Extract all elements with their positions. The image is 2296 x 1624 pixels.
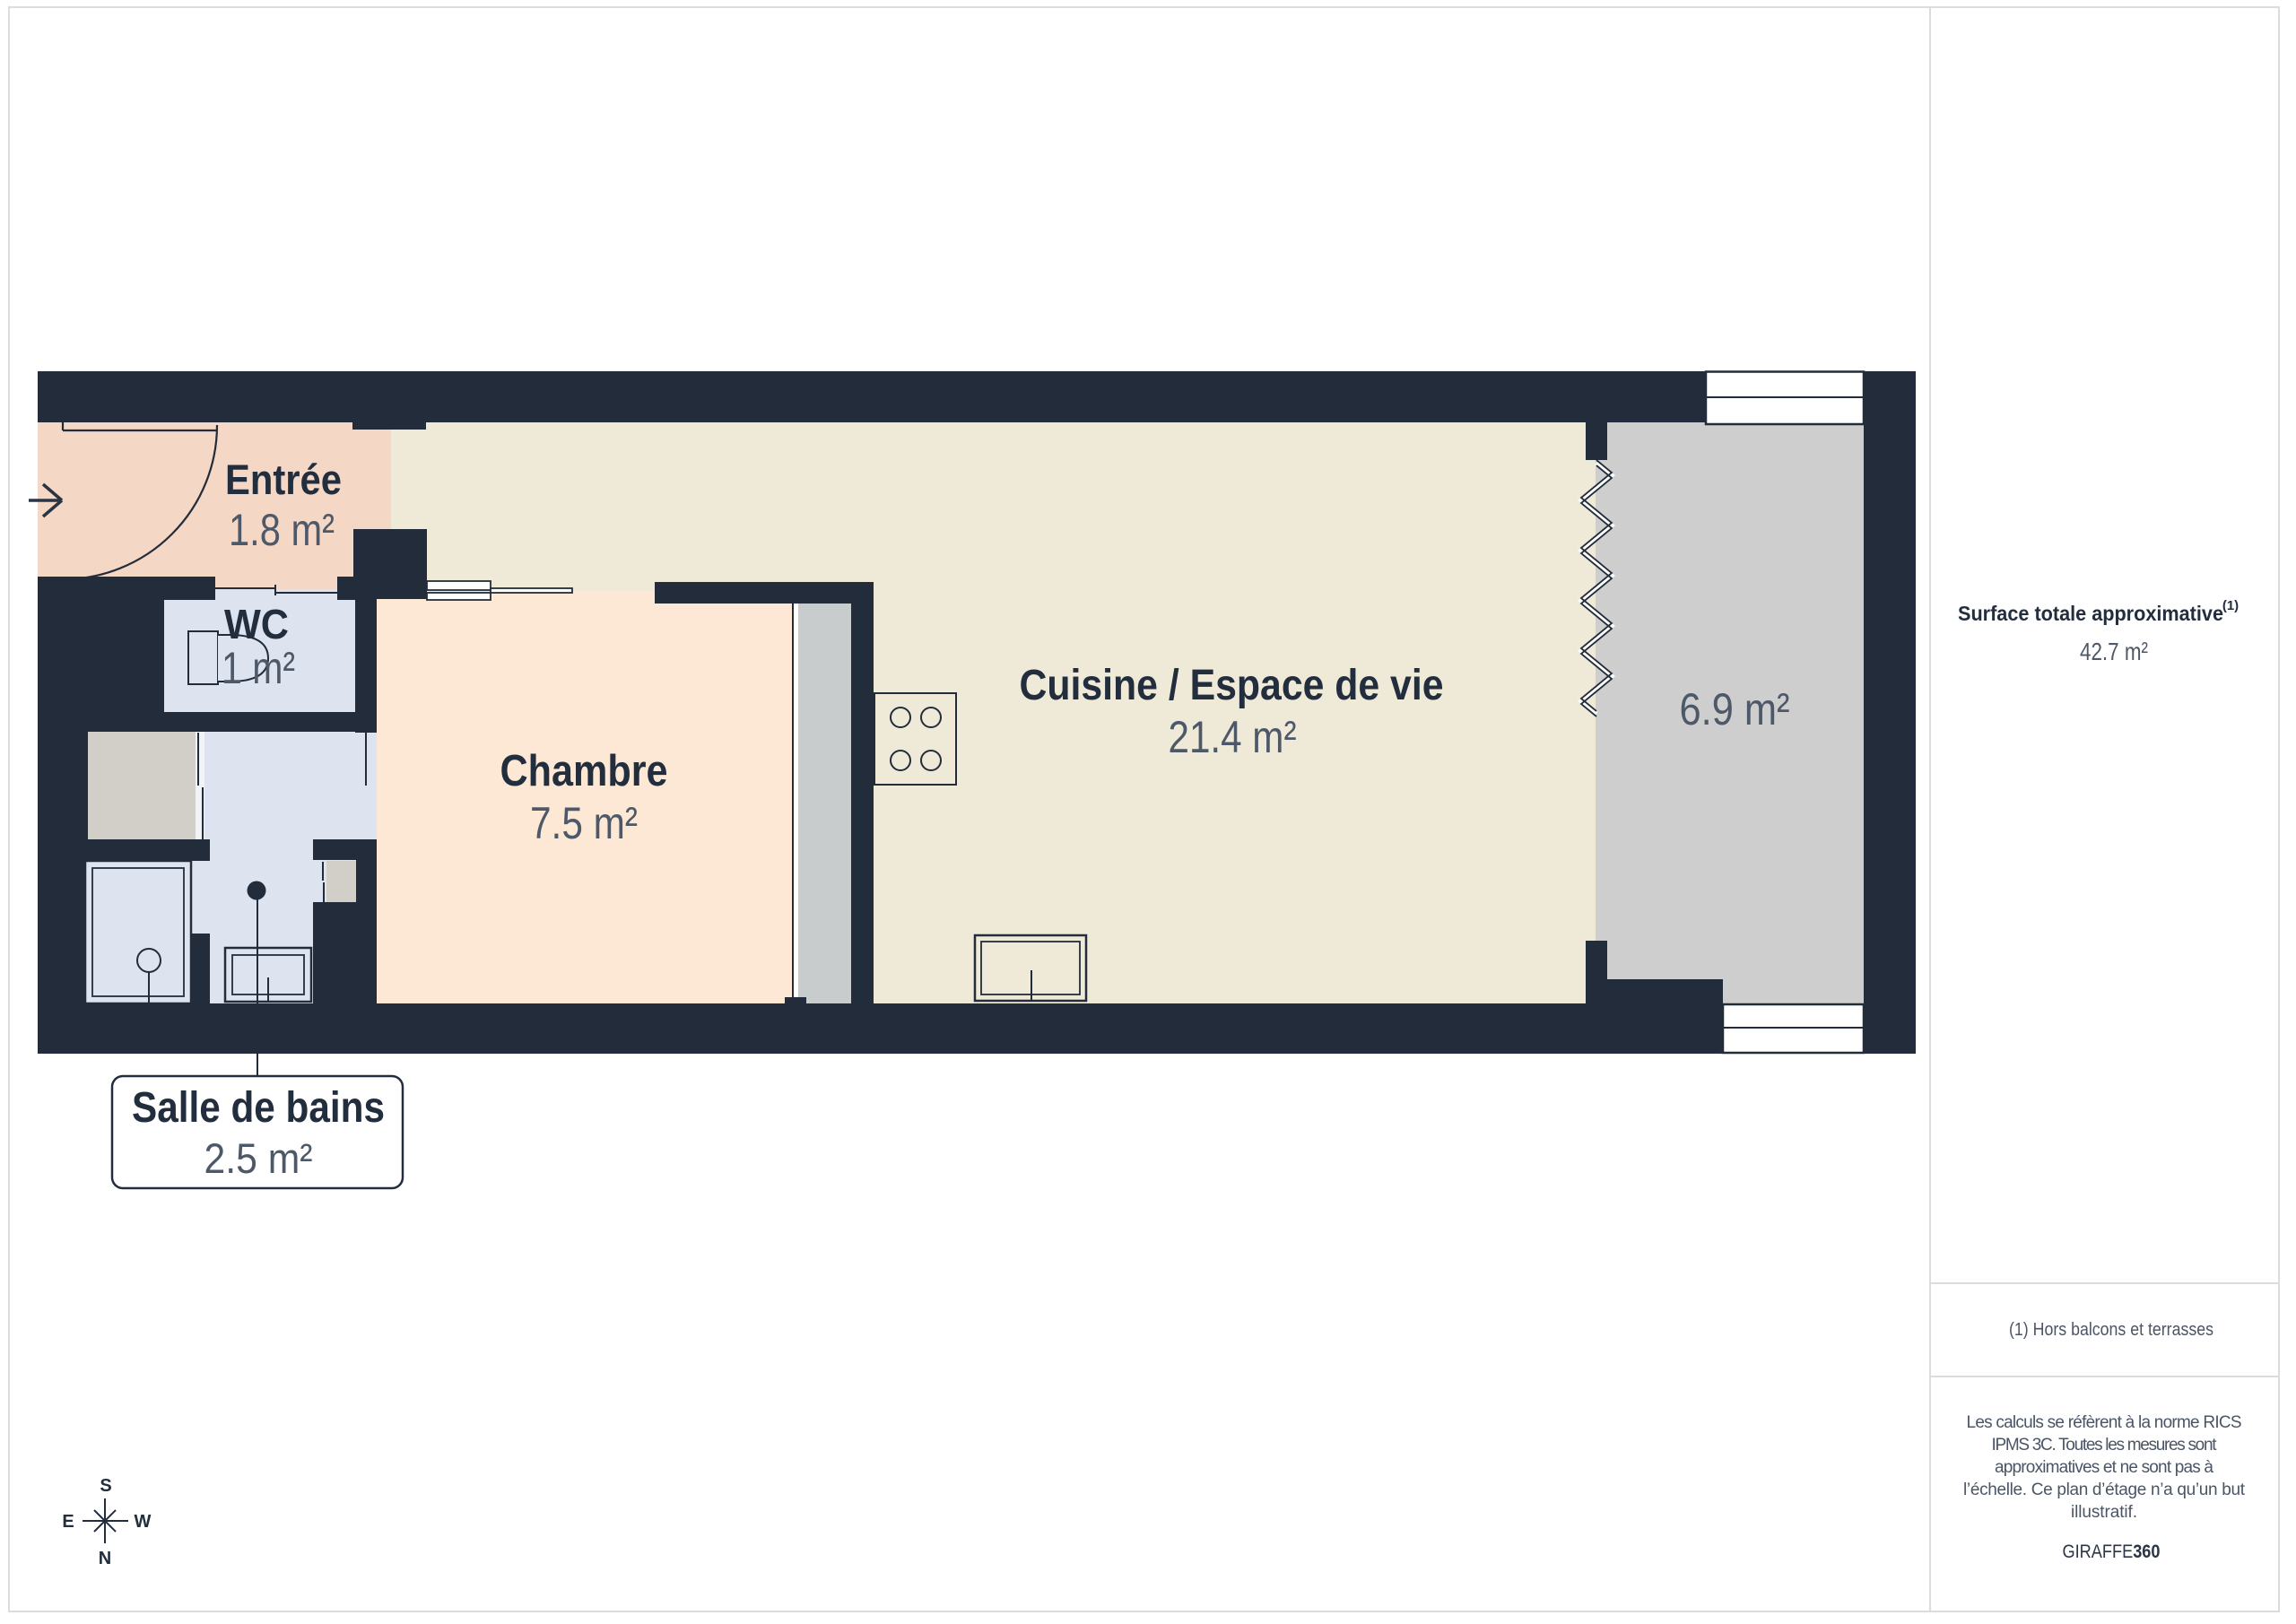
svg-text:illustratif.: illustratif. xyxy=(2071,1503,2137,1522)
svg-text:approximatives et ne sont pas: approximatives et ne sont pas à xyxy=(1995,1458,2213,1477)
svg-text:WC: WC xyxy=(224,601,289,647)
svg-text:1.8 m²: 1.8 m² xyxy=(229,505,335,555)
svg-text:IPMS 3C. Toutes les mesures so: IPMS 3C. Toutes les mesures sont xyxy=(1992,1436,2218,1455)
svg-text:2.5 m²: 2.5 m² xyxy=(204,1134,313,1182)
svg-text:Les calculs se réfèrent à la n: Les calculs se réfèrent à la norme RICS xyxy=(1967,1413,2242,1432)
svg-text:Entrée: Entrée xyxy=(225,456,342,503)
svg-text:Salle de bains: Salle de bains xyxy=(132,1084,385,1132)
svg-text:(1): (1) xyxy=(2222,598,2239,613)
svg-text:7.5 m²: 7.5 m² xyxy=(530,798,638,848)
svg-text:(1) Hors balcons et terrasses: (1) Hors balcons et terrasses xyxy=(2009,1320,2213,1340)
svg-text:21.4 m²: 21.4 m² xyxy=(1169,712,1297,762)
svg-text:1 m²: 1 m² xyxy=(222,643,295,693)
svg-text:E: E xyxy=(62,1512,74,1532)
svg-text:l’échelle. Ce plan d’étage n’a: l’échelle. Ce plan d’étage n’a qu’un but xyxy=(1963,1481,2246,1499)
svg-text:Cuisine / Espace de vie: Cuisine / Espace de vie xyxy=(1020,662,1444,709)
svg-text:42.7 m²: 42.7 m² xyxy=(2080,638,2148,665)
svg-text:Surface totale approximative: Surface totale approximative xyxy=(1958,602,2223,625)
svg-text:6.9 m²: 6.9 m² xyxy=(1680,684,1790,734)
svg-text:Chambre: Chambre xyxy=(500,747,668,795)
svg-text:S: S xyxy=(100,1476,111,1496)
svg-text:N: N xyxy=(99,1549,111,1568)
svg-text:W: W xyxy=(135,1512,152,1532)
svg-text:GIRAFFE360: GIRAFFE360 xyxy=(2063,1541,2161,1562)
